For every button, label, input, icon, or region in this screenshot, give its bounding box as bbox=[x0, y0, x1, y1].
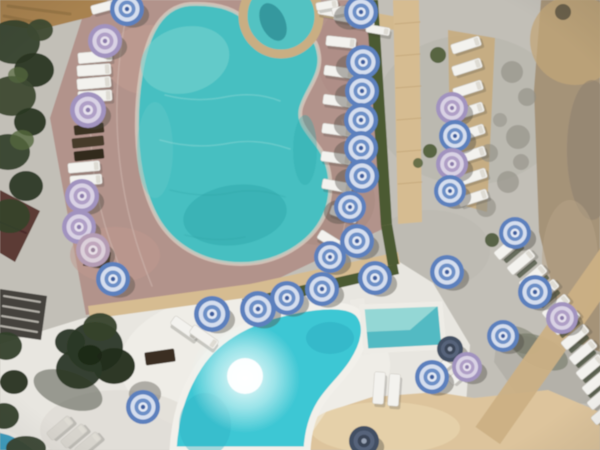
photo-vignette bbox=[0, 0, 600, 450]
aerial-resort-photo bbox=[0, 0, 600, 450]
scene-svg bbox=[0, 0, 600, 450]
